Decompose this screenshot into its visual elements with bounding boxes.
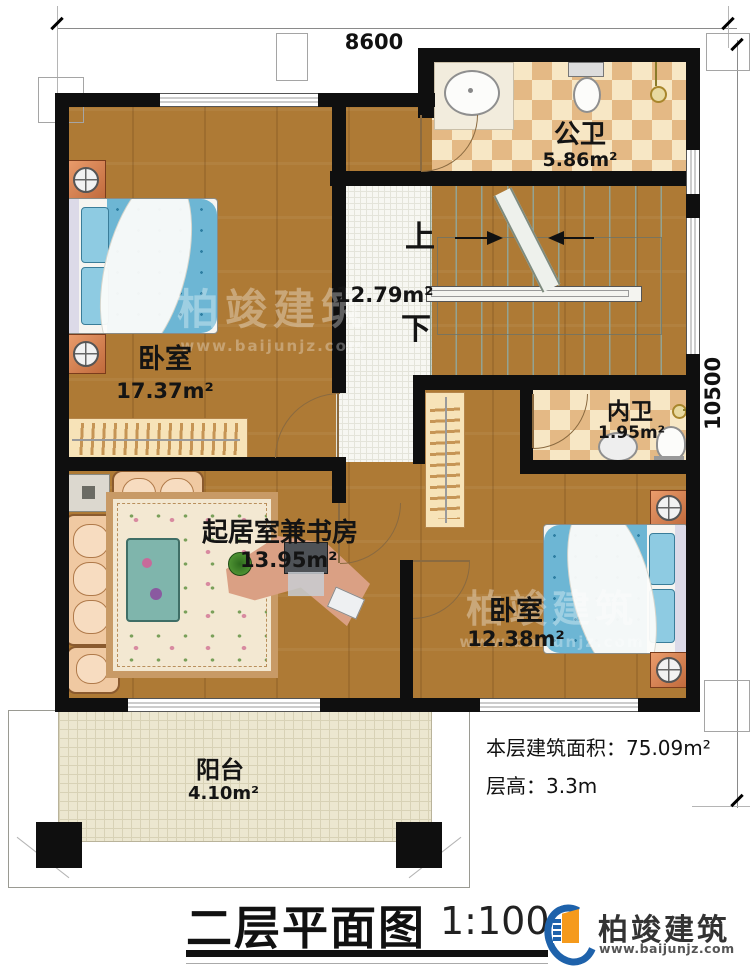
room-area-bedroom1: 17.37m² — [92, 380, 238, 402]
handrail-inner — [431, 290, 629, 297]
wall-bath-left — [418, 48, 434, 118]
room-label-bedroom1: 卧室 — [100, 346, 230, 374]
wardrobe-rod — [445, 397, 447, 523]
wall-bedroom2-left — [400, 560, 413, 698]
shower-head-icon — [672, 404, 687, 419]
floor-area-text: 本层建筑面积：75.09m² — [486, 732, 711, 761]
wall-corridor — [332, 93, 346, 393]
stair-landing-floor-lower — [336, 375, 413, 462]
nightstand — [650, 652, 688, 688]
handrail — [426, 286, 642, 302]
cushion — [73, 524, 109, 558]
monitor-stand — [288, 572, 324, 596]
stair-arrow-line — [455, 237, 487, 239]
wall-innerbath-bottom — [520, 460, 700, 474]
floor-plan-page: 8600 10500 — [0, 0, 750, 973]
stair-area-label: 12.79m² — [336, 284, 416, 306]
title-underline-thick — [186, 950, 548, 957]
balcony-column — [36, 822, 82, 868]
wall-bedroom1-bottom — [55, 457, 346, 471]
wall-living-stub — [332, 457, 346, 503]
window-bedroom1-top — [160, 93, 318, 107]
room-label-living: 起居室兼书房 — [200, 520, 360, 547]
balcony-sliding-door — [128, 698, 320, 712]
sheet-title: 二层平面图 — [186, 892, 426, 958]
grid-marker-box — [276, 33, 308, 81]
side-table-top — [82, 486, 95, 499]
title-underline-thin — [186, 963, 548, 964]
wall-landing-right — [413, 390, 425, 464]
lamp-icon — [656, 495, 682, 521]
shower-head-icon — [650, 86, 667, 103]
wall-bath-top — [418, 48, 700, 62]
dimension-right-value: 10500 — [701, 352, 727, 434]
stair-landing-floor — [336, 185, 432, 377]
grid-marker-box — [704, 680, 750, 732]
stair-up-label: 上 — [402, 222, 438, 254]
window-stair-right — [686, 218, 700, 354]
lamp-icon — [73, 341, 99, 367]
drain — [468, 88, 473, 93]
nightstand — [650, 490, 688, 526]
balcony-column — [396, 822, 442, 868]
dimension-top-value: 8600 — [338, 30, 410, 54]
lamp-icon — [73, 167, 99, 193]
room-label-balcony: 阳台 — [188, 758, 252, 783]
cushion — [73, 562, 109, 596]
wardrobe — [64, 418, 248, 460]
stair-arrow-right-icon — [487, 231, 503, 245]
window-publicbath-right — [686, 150, 700, 194]
sink-icon — [444, 70, 500, 116]
flower-icon — [150, 588, 162, 600]
room-label-bedroom2: 卧室 — [478, 598, 554, 626]
pillow — [81, 207, 109, 263]
nightstand — [66, 160, 106, 200]
cushion — [73, 600, 109, 634]
dimension-line-top — [57, 28, 737, 29]
logo-building-blue — [553, 919, 561, 943]
shower-rod — [655, 62, 657, 86]
stair-down-label: 下 — [398, 314, 434, 346]
wall-left — [55, 93, 69, 712]
toilet-icon — [573, 77, 601, 113]
logo-building-orange — [562, 909, 579, 943]
coffee-table — [126, 538, 180, 622]
wardrobe-rod — [72, 439, 239, 441]
cushion — [76, 654, 108, 684]
room-label-publicbath: 公卫 — [540, 122, 620, 149]
brand-website: www.baijunjz.com — [599, 941, 735, 956]
stair-arrow-left-icon — [548, 231, 564, 245]
toilet-tank — [568, 62, 604, 77]
room-area-publicbath: 5.86m² — [540, 151, 620, 171]
room-area-bedroom2: 12.38m² — [466, 628, 566, 650]
room-area-living: 13.95m² — [240, 549, 320, 571]
room-label-innerbath: 内卫 — [598, 400, 662, 424]
floor-height-text: 层高：3.3m — [486, 770, 597, 799]
stair-arrow-line — [564, 237, 594, 239]
brand-logo-icon — [545, 901, 591, 957]
bed — [66, 198, 218, 334]
flower-icon — [142, 558, 152, 568]
side-table — [68, 474, 110, 512]
room-area-innerbath: 1.95m² — [598, 425, 662, 443]
room-area-balcony: 4.10m² — [188, 785, 252, 804]
extension-line-bottom-right — [692, 806, 750, 807]
lamp-icon — [656, 657, 682, 683]
pillow — [649, 533, 675, 585]
wardrobe-vertical — [425, 392, 465, 528]
window-bedroom2-bottom — [480, 698, 638, 712]
sheet-scale: 1:100 — [440, 899, 550, 943]
wall-stair-top — [330, 171, 700, 186]
wall-stair-bottom — [413, 375, 700, 390]
